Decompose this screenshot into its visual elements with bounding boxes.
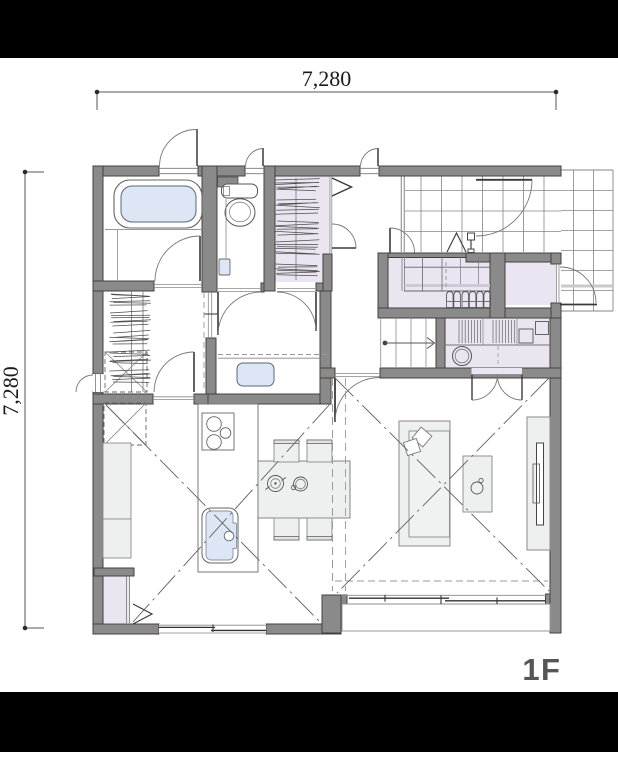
svg-text:7,280: 7,280 [302,66,352,91]
svg-text:7,280: 7,280 [0,366,23,416]
svg-text:1F: 1F [522,652,561,687]
